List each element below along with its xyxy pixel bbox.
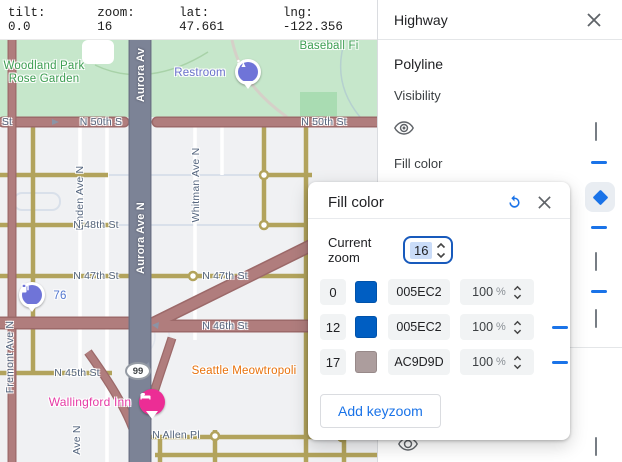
street-label: St	[2, 116, 12, 128]
panel-header: Highway	[378, 0, 622, 40]
keyzoom-toggle-2[interactable]	[595, 253, 597, 271]
street-label-aurora: Aurora Ave N	[135, 202, 147, 274]
add-keyzoom-button[interactable]: Add keyzoom	[320, 394, 441, 428]
keyzoom-selected-toggle[interactable]	[585, 182, 615, 212]
stepper-chevrons-icon[interactable]	[513, 355, 522, 370]
current-zoom-row: Current zoom 16	[308, 219, 570, 279]
close-icon	[586, 12, 602, 28]
fill-color-zoom-dash[interactable]	[591, 161, 607, 164]
keyzoom-level[interactable]: 0	[320, 279, 346, 305]
bed-icon	[142, 392, 162, 412]
gas-station-pin[interactable]	[19, 282, 45, 308]
street-label-n50-left: N 50th S	[80, 116, 122, 128]
keyzoom-level[interactable]: 17	[320, 349, 346, 375]
opacity-field[interactable]: 100%	[460, 279, 534, 305]
street-label-n47-left: N 47th St	[73, 270, 119, 282]
street-label-n45: N 45th St	[54, 367, 100, 379]
lat-readout: lat: 47.661	[179, 6, 259, 34]
street-label-aurora-top: Aurora Av	[135, 48, 147, 102]
percent-sign: %	[496, 321, 506, 333]
map-status-bar: tilt: 0.0 zoom: 16 lat: 47.661 lng: -122…	[0, 0, 377, 40]
park-label[interactable]: Woodland Park Rose Garden	[0, 60, 90, 86]
gas-pump-icon	[22, 285, 42, 305]
stroke-zoom-dash[interactable]	[591, 226, 607, 229]
opacity-value: 100	[472, 320, 493, 334]
restroom-pin[interactable]	[235, 59, 261, 85]
map-style-editor: Woodland Park Rose Garden Restroom Baseb…	[0, 0, 622, 462]
stepper-chevrons-icon[interactable]	[436, 242, 446, 259]
route-99-number: 99	[133, 366, 144, 377]
restroom-label[interactable]: Restroom	[174, 67, 225, 79]
remove-keyzoom-button[interactable]	[552, 326, 568, 329]
percent-sign: %	[496, 356, 506, 368]
poi-label-wallingford-inn[interactable]: Wallingford Inn	[49, 395, 132, 409]
close-icon	[537, 195, 552, 210]
eye-icon	[393, 117, 415, 139]
hex-field[interactable]: 005EC2	[388, 279, 450, 305]
street-label-n50-right: N 50th St	[301, 116, 347, 128]
section-polyline: Polyline	[394, 56, 443, 72]
pin-tip	[26, 304, 38, 318]
street-label-ave-n: Ave N	[71, 425, 83, 454]
percent-sign: %	[496, 286, 506, 298]
dialog-header: Fill color	[308, 186, 570, 218]
baseball-field-label[interactable]: Baseball Fi	[299, 40, 358, 52]
hotel-pin[interactable]	[139, 389, 165, 415]
visibility-keyzoom-toggle-2[interactable]	[595, 438, 597, 456]
fill-color-label: Fill color	[394, 156, 442, 171]
remove-keyzoom-button[interactable]	[552, 361, 568, 364]
visibility-toggle[interactable]	[392, 116, 416, 140]
dialog-title: Fill color	[328, 194, 502, 211]
zoom-readout: zoom: 16	[97, 6, 155, 34]
visibility-label: Visibility	[394, 88, 441, 103]
opacity-field[interactable]: 100%	[460, 314, 534, 340]
pin-tip	[146, 411, 158, 425]
restroom-icon	[238, 62, 258, 82]
route-99-shield: 99	[125, 362, 151, 380]
opacity-value: 100	[472, 285, 493, 299]
diamond-icon	[595, 122, 597, 141]
poi-label-meowtropolitan[interactable]: Seattle Meowtropoli	[192, 365, 297, 377]
color-swatch[interactable]	[355, 351, 377, 373]
reset-button[interactable]	[502, 190, 526, 214]
gas-station-label[interactable]: 76	[53, 290, 66, 302]
diamond-icon	[595, 437, 597, 456]
opacity-field[interactable]: 100%	[460, 349, 534, 375]
dialog-close-button[interactable]	[532, 190, 556, 214]
visibility-keyzoom-toggle[interactable]	[595, 123, 597, 141]
opacity-value: 100	[472, 355, 493, 369]
ballfield-area	[300, 92, 337, 116]
current-zoom-stepper[interactable]: 16	[403, 236, 453, 264]
street-label-whitman: Whitman Ave N	[190, 148, 202, 223]
stepper-chevrons-icon[interactable]	[513, 320, 522, 335]
color-swatch[interactable]	[355, 281, 377, 303]
weight-zoom-dash[interactable]	[591, 290, 607, 293]
street-label-n48: N 48th St	[73, 219, 119, 231]
hex-field[interactable]: 005EC2	[388, 314, 450, 340]
keyzoom-level[interactable]: 12	[320, 314, 346, 340]
keyzoom-row: 0 005EC2 100%	[320, 279, 570, 305]
diamond-filled-icon	[592, 189, 608, 205]
keyzoom-row: 17 AC9D9D 100%	[320, 349, 570, 375]
lng-readout: lng: -122.356	[283, 6, 377, 34]
panel-close-button[interactable]	[582, 8, 606, 32]
diamond-icon	[595, 309, 597, 328]
panel-title: Highway	[394, 12, 448, 28]
street-label-n47-right: N 47th St	[202, 270, 248, 282]
pin-tip	[242, 81, 254, 95]
reset-icon	[506, 194, 523, 211]
street-label-n46: N 46th St	[202, 320, 248, 332]
street-label-allen: N Allen Pl	[152, 429, 200, 441]
fill-color-dialog: Fill color Current zoom 16	[308, 182, 570, 440]
keyzoom-toggle-3[interactable]	[595, 310, 597, 328]
diamond-icon	[595, 252, 597, 271]
current-zoom-label: Current zoom	[328, 235, 403, 265]
hex-field[interactable]: AC9D9D	[388, 349, 450, 375]
street-label-fremont: Fremont Ave N	[4, 321, 16, 393]
current-zoom-value[interactable]: 16	[410, 242, 432, 259]
stepper-chevrons-icon[interactable]	[513, 285, 522, 300]
keyzoom-row: 12 005EC2 100%	[320, 314, 570, 340]
color-swatch[interactable]	[355, 316, 377, 338]
tilt-readout: tilt: 0.0	[8, 6, 73, 34]
